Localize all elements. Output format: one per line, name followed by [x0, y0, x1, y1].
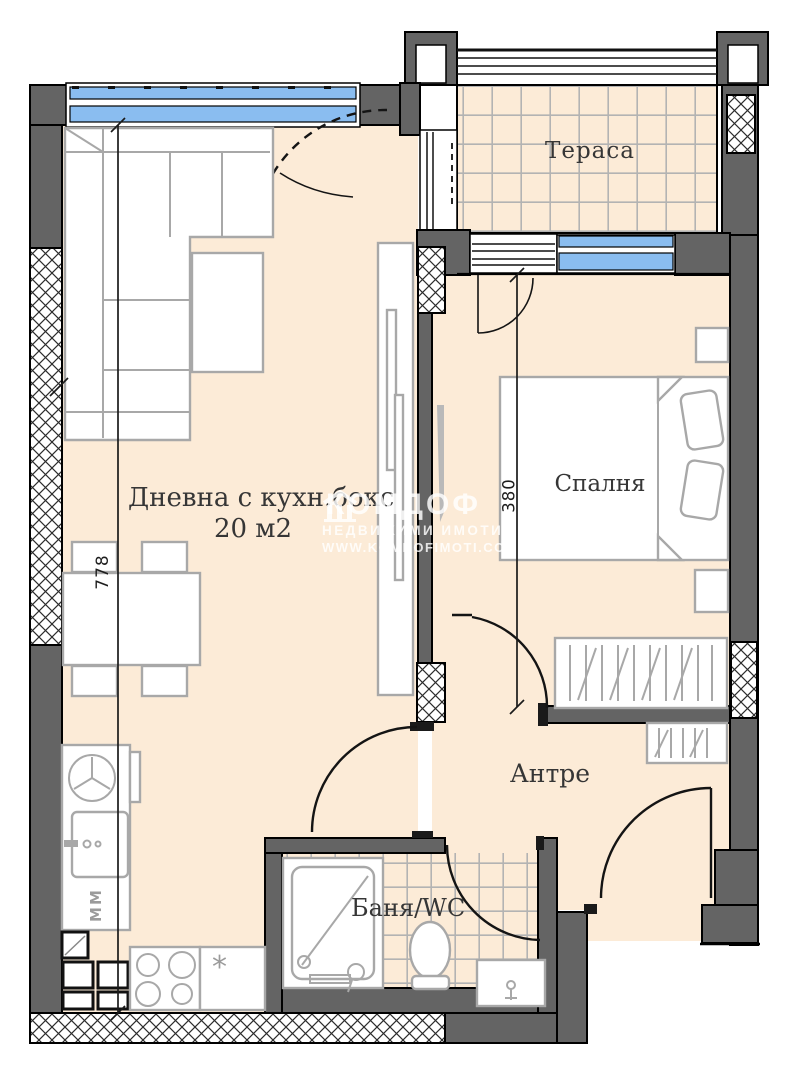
hall-bedroom-floor — [432, 275, 730, 941]
shoe-cabinet — [647, 723, 727, 763]
nightstand-bottom — [695, 570, 728, 612]
right-wall — [730, 235, 758, 945]
terrace-band — [457, 233, 730, 275]
bed — [500, 377, 728, 560]
stove — [130, 947, 200, 1010]
coffee-table — [192, 253, 263, 372]
left-wall — [30, 85, 62, 1015]
terrace-exit-door — [470, 234, 557, 273]
washing-machine-label: ММ — [87, 885, 105, 925]
terrace-floor — [457, 85, 717, 233]
bedroom-window — [557, 235, 675, 273]
dimension-380: 380 — [500, 474, 519, 518]
bath-sink — [477, 960, 545, 1006]
terrace-door-frame — [420, 130, 457, 233]
toilet — [410, 922, 450, 989]
wardrobe — [555, 638, 727, 708]
dimension-778: 778 — [93, 547, 113, 597]
tv-cabinet — [378, 243, 413, 695]
terrace-railing — [457, 50, 717, 74]
floor-plan: Тераса Дневна с кухн.бокс 20 м2 Спалня А… — [0, 0, 800, 1077]
nightstand-top — [696, 328, 728, 362]
bathtub — [283, 858, 383, 992]
kitchen-worktop — [200, 947, 265, 1010]
top-wall-and-window — [30, 83, 405, 127]
counter-mark: * — [212, 950, 227, 985]
living-window — [66, 83, 360, 127]
floor-plan-drawing — [0, 0, 800, 1077]
